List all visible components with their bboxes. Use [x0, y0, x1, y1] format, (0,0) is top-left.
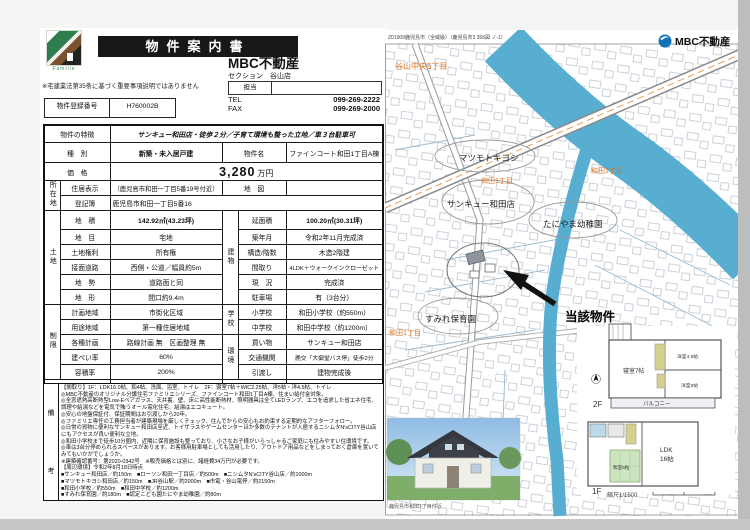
- name-value: ファインコート和田1丁目A棟: [286, 143, 383, 163]
- land-right-value: 所有権: [110, 245, 222, 260]
- room-label-ldk: LDK: [660, 447, 673, 454]
- plans-value: 路線計画 無 区画整理 無: [110, 335, 222, 350]
- registration-box: 物件登録番号 H760002B: [44, 98, 176, 118]
- registration-number: H760002B: [110, 99, 175, 117]
- branch-section: セクション 谷山店: [228, 71, 291, 81]
- structure-value: 木造2階建: [286, 245, 383, 260]
- remarks-body: 【間取り】1F：LDK16.0帖、和4帖、洗面、浴室、トイレ 2F：寝室7帖＋W…: [59, 384, 383, 500]
- parking-label: 駐車場: [238, 290, 286, 305]
- land-group: 土地: [44, 211, 60, 305]
- registration-label: 物件登録番号: [45, 99, 110, 117]
- note-line: ◎安心の地盤保証付、保証期間はお引渡しから20年。: [61, 412, 381, 419]
- note-line: ◎全窓遮熱高断熱型Low-Eペアガラス、天井裏、壁、床に高性能断熱材、照明器具は…: [61, 398, 381, 411]
- elementary-value: 和田小学校（約550m）: [286, 305, 383, 320]
- remarks-box: 備考 【間取り】1F：LDK16.0帖、和4帖、洗面、浴室、トイレ 2F：寝室7…: [43, 383, 384, 501]
- note-line: ■サンキュー和田店／約150m ■ローソン和田一丁目店／約500m ■ニシムタN…: [61, 472, 381, 479]
- scan-edge-right: [738, 0, 750, 530]
- transport-label: 交通機関: [238, 350, 286, 365]
- parking-value: 有（3台分）: [286, 290, 383, 305]
- coverage-value: 60%: [110, 350, 222, 365]
- area-map: Z01909鹿児島市（全域版）〔鹿児島市3 356図 ノ-1〕 MBC不動産 谷…: [385, 30, 745, 520]
- shopping-value: サンキュー和田店: [286, 335, 383, 350]
- property-sheet: Familie 物件案内書 ※宅建業法第35条に基づく重要事項説明ではありません…: [40, 28, 386, 500]
- room-label-ldk-size: 16帖: [660, 454, 674, 463]
- registry-value: 鹿児島市和田一丁目5番16: [110, 196, 383, 211]
- subject-property-label: 当該物件: [565, 309, 616, 324]
- area-label-wada1-c: 和田1丁目: [389, 328, 421, 337]
- name-label: 物件名: [222, 143, 286, 163]
- structure-label: 構造/階数: [238, 245, 286, 260]
- location-group: 所在地: [44, 181, 60, 211]
- terrain-value: 道路面と同: [110, 275, 222, 290]
- remarks-group-label: 備考: [44, 384, 59, 500]
- floor-area-label: 延面積: [238, 211, 286, 230]
- plan-area-value: 市街化区域: [110, 305, 222, 320]
- address-label: 住居表示: [60, 181, 110, 196]
- disclaimer-text: ※宅建業法第35条に基づく重要事項説明ではありません: [42, 81, 199, 90]
- features-value: サンキュー和田店・徒歩２分／子育て環境も整った立地／車３台駐車可: [110, 125, 383, 143]
- poi-label-sankyu-wada: サンキュー和田店: [447, 199, 516, 209]
- coverage-label: 建ぺい率: [60, 350, 110, 365]
- plan-area-label: 計画地域: [60, 305, 110, 320]
- address-value: （鹿児島市和田一丁目5番19号付近）: [110, 181, 222, 196]
- land-use-label: 地 目: [60, 230, 110, 245]
- status-label: 現 況: [238, 275, 286, 290]
- familie-logo-icon: [46, 30, 82, 66]
- built-date-value: 令和2年11月完成済: [286, 230, 383, 245]
- floor-area-value: 100.20㎡(30.31坪): [286, 211, 383, 230]
- balcony-label: バルコニー: [643, 401, 670, 408]
- contact-label: 担当: [229, 82, 272, 94]
- floorplan-2f: 寝室7帖 洋室4.5帖 洋室5帖 バルコニー 2F: [577, 324, 735, 418]
- land-area-value: 142.92㎡(43.23坪): [110, 211, 222, 230]
- note-line: ◎日常の買物に便利なサンキュー和田店至近、トイザラスやゲームセンターほか多数のテ…: [61, 425, 381, 438]
- fax-number: 099-269-2000: [333, 104, 380, 113]
- building-group: 建物: [222, 211, 238, 305]
- shopping-label: 買い物: [238, 335, 286, 350]
- plans-label: 各種計画: [60, 335, 110, 350]
- tel-number: 099-269-2222: [333, 95, 380, 104]
- handover-value: 建物完成後: [286, 365, 383, 380]
- poi-label-taniyama-kindergarten: たにやま幼稚園: [543, 219, 603, 229]
- elementary-label: 小学校: [238, 305, 286, 320]
- floorplan-1f: 和室6帖 LDK 16帖 1F: [577, 416, 735, 496]
- property-table: 物件の特徴 サンキュー和田店・徒歩２分／子育て環境も整った立地／車３台駐車可 種…: [43, 124, 384, 397]
- mbc-logo-text: MBC不動産: [675, 35, 730, 48]
- zoning-value: 第一種住居地域: [110, 320, 222, 335]
- house-photo: [386, 418, 521, 500]
- zoning-label: 用途地域: [60, 320, 110, 335]
- type-label: 種 別: [44, 143, 110, 163]
- land-use-value: 宅地: [110, 230, 222, 245]
- transport-value: 鹿交「大御堂バス停」徒歩2分: [286, 350, 383, 365]
- price-unit: 万円: [257, 169, 273, 178]
- environment-group: 環境: [222, 335, 238, 380]
- map-ref-text: Z01909鹿児島市（全域版）〔鹿児島市3 356図 ノ-1〕: [388, 34, 506, 41]
- room-label-west45: 洋室4.5帖: [677, 353, 698, 360]
- tel-label: TEL: [228, 95, 242, 104]
- mapref-value: [286, 181, 383, 196]
- land-area-label: 地 積: [60, 211, 110, 230]
- photo-caption: 鹿児島市和田1丁目付近: [389, 503, 442, 510]
- far-label: 容積率: [60, 365, 110, 380]
- shape-value: 間口約9.4m: [110, 290, 222, 305]
- terrain-label: 地 勢: [60, 275, 110, 290]
- floor-label-2f: 2F: [593, 400, 602, 409]
- far-value: 200%: [110, 365, 222, 380]
- school-group: 学校: [222, 305, 238, 335]
- price-number: 3,280: [219, 165, 255, 179]
- note-line: ◎車は3台分停められるスペースがあります。お客様用駐車場としても活用したり、アウ…: [61, 445, 381, 458]
- poi-label-sumire-nursery: すみれ保育園: [425, 314, 476, 324]
- scan-edge-bottom: [0, 519, 750, 530]
- land-right-label: 土地権利: [60, 245, 110, 260]
- note-line: 【間取り】1F：LDK16.0帖、和4帖、洗面、浴室、トイレ 2F：寝室7帖＋W…: [61, 385, 381, 392]
- road-label: 接面道路: [60, 260, 110, 275]
- shape-label: 地 形: [60, 290, 110, 305]
- house-glyph-icon: [67, 53, 73, 61]
- features-label: 物件の特徴: [44, 125, 110, 143]
- registry-label: 登記簿: [60, 196, 110, 211]
- note-line: ■マツモトキヨシ和田店／約150m ■JR谷山駅／約2000m ■市電・谷山電停…: [61, 479, 381, 486]
- layout-value: 4LDK＋ウォークインクローゼット: [286, 260, 383, 275]
- room-label-west5: 洋室5帖: [681, 382, 698, 389]
- regulation-group: 制限: [44, 305, 60, 380]
- status-value: 完成済: [286, 275, 383, 290]
- note-line: ■すみれ保育園／約180m ■認定こども園たにやま幼稚園／約80m: [61, 492, 381, 499]
- handover-label: 引渡し: [238, 365, 286, 380]
- junior-label: 中学校: [238, 320, 286, 335]
- area-label-wada1-b: 和田1丁目: [591, 166, 623, 175]
- area-label-taniyama-chuo: 谷山中央5丁目: [395, 61, 447, 71]
- floor-label-1f: 1F: [592, 487, 601, 496]
- company-name: MBC不動産: [228, 52, 299, 72]
- poi-label-matsumotokiyoshi: マツモトキヨシ: [459, 153, 519, 163]
- price-value: 3,280 万円: [110, 163, 383, 181]
- tel-row: TEL 099-269-2222: [228, 95, 380, 104]
- area-label-wada1-a: 和田1丁目: [481, 176, 513, 185]
- mapref-label: 地 図: [222, 181, 286, 196]
- junior-value: 和田中学校（約1200m）: [286, 320, 383, 335]
- built-date-label: 築年月: [238, 230, 286, 245]
- scale-text: 縮尺1/1500: [607, 491, 638, 499]
- familie-logo-text: Familie: [44, 66, 84, 72]
- price-label: 価 格: [44, 163, 110, 181]
- road-value: 西側・公道／幅員約5m: [110, 260, 222, 275]
- fax-label: FAX: [228, 104, 242, 113]
- fax-row: FAX 099-269-2000: [228, 104, 380, 113]
- room-label-bedroom7: 寝室7帖: [623, 367, 644, 375]
- layout-label: 間取り: [238, 260, 286, 275]
- room-label-washitsu: 和室6帖: [613, 464, 630, 471]
- contact-box: 担当: [228, 81, 382, 95]
- type-value: 新築・未入居戸建: [110, 143, 222, 163]
